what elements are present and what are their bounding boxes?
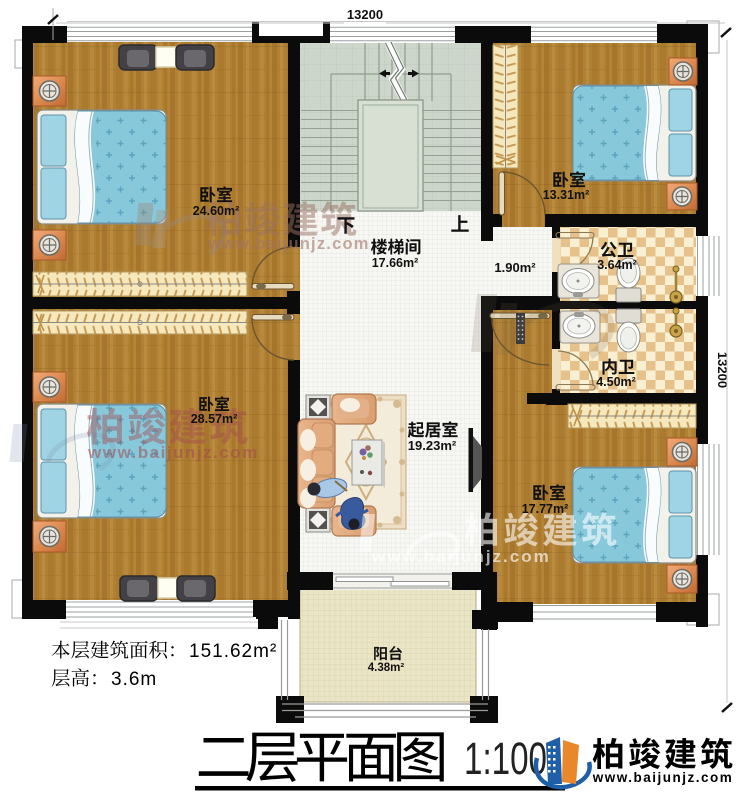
svg-text:13.31m²: 13.31m² bbox=[543, 188, 590, 202]
svg-text:4.38m²: 4.38m² bbox=[368, 662, 405, 674]
svg-text:www.baijunjz.com: www.baijunjz.com bbox=[207, 235, 370, 253]
svg-text:151.62m²: 151.62m² bbox=[189, 641, 277, 662]
svg-text:19.23m²: 19.23m² bbox=[408, 438, 457, 453]
svg-text:17.66m²: 17.66m² bbox=[372, 256, 419, 270]
svg-text:1.90m²: 1.90m² bbox=[494, 260, 536, 275]
svg-text:4.50m²: 4.50m² bbox=[596, 375, 636, 389]
svg-text:www.baijunjz.com: www.baijunjz.com bbox=[371, 547, 551, 566]
svg-text:www.baijunjz.com: www.baijunjz.com bbox=[87, 443, 259, 462]
svg-text:3.6m: 3.6m bbox=[111, 669, 157, 690]
svg-text:www.baijunjz.com: www.baijunjz.com bbox=[592, 770, 734, 785]
svg-text:24.60m²: 24.60m² bbox=[193, 204, 240, 218]
svg-text:13200: 13200 bbox=[347, 7, 383, 22]
svg-text:28.57m²: 28.57m² bbox=[191, 412, 238, 426]
svg-text:13200: 13200 bbox=[715, 352, 730, 388]
svg-text:17.77m²: 17.77m² bbox=[522, 502, 569, 516]
svg-text:3.64m²: 3.64m² bbox=[597, 258, 637, 272]
